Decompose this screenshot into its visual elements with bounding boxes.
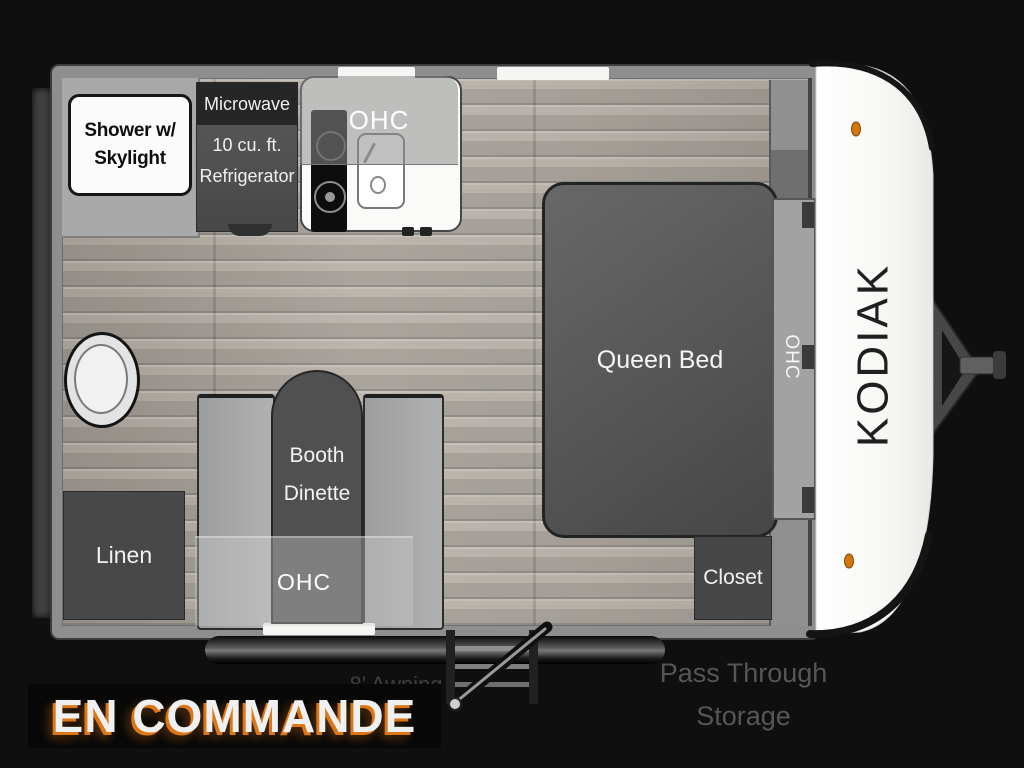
marker-light-icon	[852, 122, 861, 136]
status-banner: EN COMMANDE	[28, 684, 441, 748]
toilet-bowl-icon	[74, 344, 128, 414]
entry-steps-icon	[430, 618, 580, 728]
window-top-bedroom	[497, 67, 609, 80]
counter-knob-icon	[402, 227, 414, 236]
refrigerator-label-line2: Refrigerator	[197, 166, 297, 187]
closet-label: Closet	[703, 566, 763, 590]
dinette-overhead-cabinet: OHC	[195, 536, 413, 626]
faucet-base-icon	[370, 176, 386, 194]
pass-through-line2: Storage	[656, 695, 831, 738]
kitchen-ohc-label: OHC	[349, 105, 410, 136]
refrigerator-box: Microwave 10 cu. ft. Refrigerator	[196, 82, 298, 232]
refrigerator-label-line1: 10 cu. ft.	[197, 135, 297, 156]
closet-box: Closet	[694, 536, 772, 620]
shower-label-line1: Shower w/	[84, 120, 175, 142]
kitchen-overhead-cabinet: OHC	[300, 76, 458, 165]
linen-closet: Linen	[63, 491, 185, 620]
brand-kodiak-label: KODIAK	[849, 263, 898, 447]
burner-icon	[314, 181, 346, 213]
microwave-label: Microwave	[204, 94, 290, 115]
front-cap-and-hitch: KODIAK	[800, 50, 1024, 675]
queen-bed-label: Queen Bed	[597, 346, 724, 375]
marker-light-icon	[845, 554, 854, 568]
shower-box: Shower w/ Skylight	[68, 94, 192, 196]
microwave-strip: Microwave	[197, 83, 297, 125]
queen-bed: Queen Bed	[542, 182, 778, 538]
linen-label: Linen	[96, 542, 152, 569]
status-banner-label: EN COMMANDE	[53, 689, 417, 743]
floorplan-image: Shower w/ Skylight Microwave 10 cu. ft. …	[0, 0, 1024, 768]
refrigerator-label: 10 cu. ft. Refrigerator	[197, 135, 297, 187]
counter-knob-icon	[420, 227, 432, 236]
dinette-label-line2: Dinette	[284, 482, 351, 506]
dinette-label-line1: Booth	[290, 444, 345, 468]
rear-bumper	[32, 88, 52, 618]
dinette-ohc-label: OHC	[277, 569, 331, 596]
refrigerator-door-arc	[228, 224, 272, 236]
shower-label-line2: Skylight	[94, 148, 166, 170]
hitch-coupler	[960, 357, 994, 374]
